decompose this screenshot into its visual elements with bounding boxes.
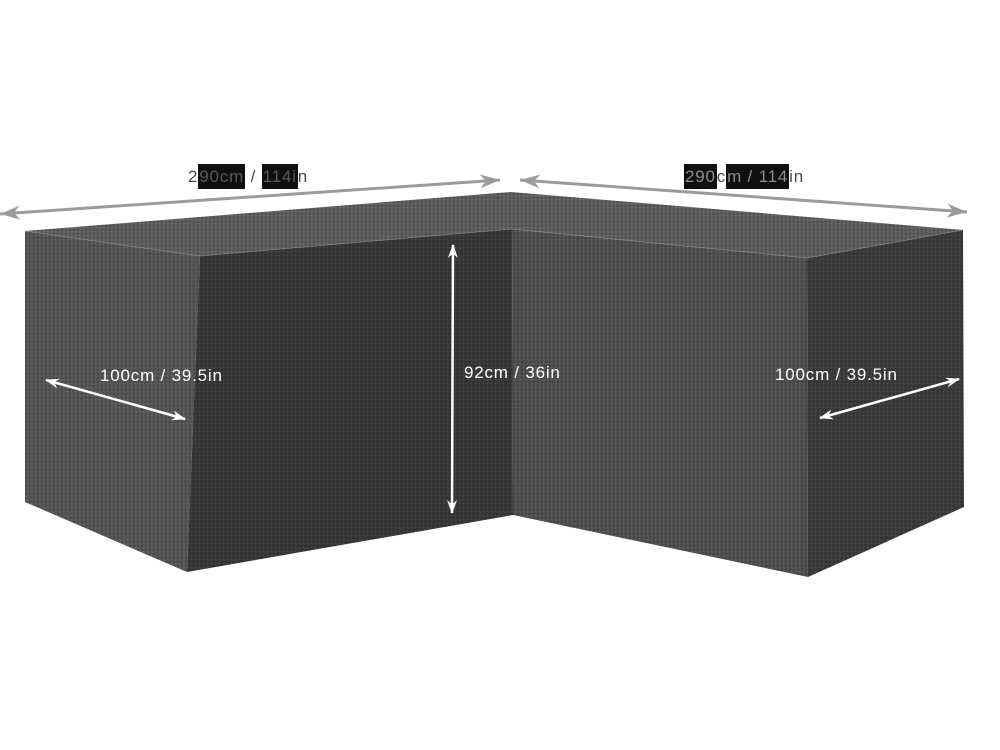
dimension-label-depth-right: 100cm / 39.5in <box>775 364 898 385</box>
dimension-label-length-left: 290cm / 114in <box>188 166 308 187</box>
cover-right-inner-face-texture <box>512 229 808 577</box>
dimension-label-depth-left: 100cm / 39.5in <box>100 365 223 386</box>
dimension-label-height: 92cm / 36in <box>464 362 561 383</box>
cover-left-end-face-texture <box>25 231 200 572</box>
cover-right-end-face-texture <box>807 230 964 577</box>
cover-left-inner-face-texture <box>187 229 513 572</box>
arrow-height <box>452 245 453 513</box>
sofa-cover-dimension-diagram: 290cm / 114in 290cm / 114in 100cm / 39.5… <box>0 0 1000 750</box>
dimension-label-length-right: 290cm / 114in <box>684 166 804 187</box>
